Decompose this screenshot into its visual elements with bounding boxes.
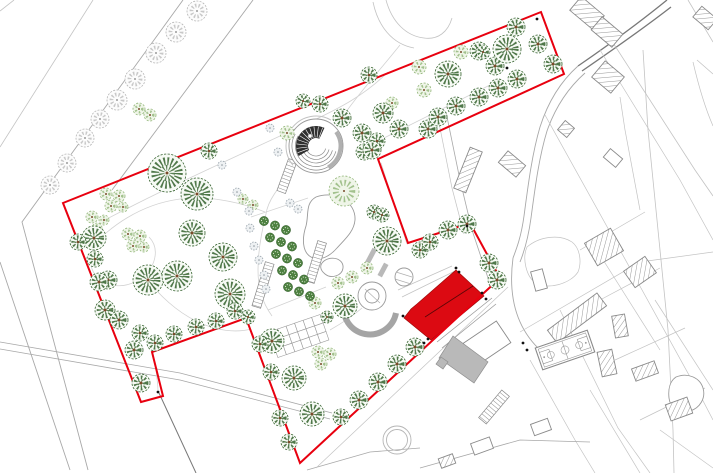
tree-trunk xyxy=(122,206,124,208)
survey-dot xyxy=(402,315,405,318)
survey-dot xyxy=(423,342,426,345)
tree-trunk xyxy=(132,245,134,247)
tree-trunk xyxy=(377,381,380,384)
tree-orchard xyxy=(287,242,296,251)
tree-trunk xyxy=(488,262,491,265)
tree-light xyxy=(312,346,324,358)
tree-light xyxy=(417,83,431,97)
building-roof xyxy=(597,349,617,377)
tree-trunk xyxy=(329,353,331,355)
tree-trunk xyxy=(326,316,328,318)
plan-line xyxy=(660,430,713,468)
tree-deciduous xyxy=(544,55,562,73)
tree-orchard xyxy=(305,291,314,300)
tree-trunk xyxy=(381,214,383,216)
tree-light xyxy=(346,271,358,283)
tree-canopy xyxy=(299,275,308,284)
tree-light xyxy=(127,240,139,252)
tree-trunk xyxy=(270,371,273,374)
tree-deciduous xyxy=(148,154,186,192)
amphi-center-dot xyxy=(308,134,312,138)
tree-trunk xyxy=(149,114,151,116)
tree-trunk xyxy=(140,382,143,385)
tree-trunk xyxy=(552,63,555,66)
tree-deciduous xyxy=(361,67,377,83)
shrub-center xyxy=(236,191,238,193)
tree-trunk xyxy=(344,305,347,308)
tree-deciduous xyxy=(321,311,333,323)
tree-trunk xyxy=(215,320,218,323)
tree-trunk xyxy=(103,219,105,221)
tree-light xyxy=(122,228,134,240)
tree-deciduous xyxy=(493,35,521,63)
survey-dot xyxy=(526,349,529,352)
tree-trunk xyxy=(371,149,374,152)
survey-dot xyxy=(522,342,525,345)
hatched-building xyxy=(438,454,456,469)
plan-line xyxy=(608,35,713,196)
tree-deciduous xyxy=(87,251,103,267)
plan-line xyxy=(386,0,452,38)
tree-canopy xyxy=(259,216,268,225)
shrub-center xyxy=(249,227,251,229)
plan-line xyxy=(373,2,414,48)
tree-trunk xyxy=(396,363,399,366)
tree-trunk xyxy=(279,417,282,420)
tree-trunk xyxy=(93,237,96,240)
tree-trunk xyxy=(175,31,177,33)
tree-orchard xyxy=(276,237,285,246)
garden-bench xyxy=(378,263,389,278)
tree-trunk xyxy=(340,416,343,419)
tree-trunk xyxy=(118,195,120,197)
tree-deciduous xyxy=(162,261,192,291)
hatched-building xyxy=(592,61,625,93)
tree-trunk xyxy=(173,333,176,336)
tree-orchard xyxy=(293,258,302,267)
plan-line xyxy=(590,390,640,473)
tree-orchard xyxy=(277,266,286,275)
tree-trunk xyxy=(127,233,129,235)
tree-trunk xyxy=(423,89,425,91)
building-roof xyxy=(531,269,548,291)
tree-deciduous xyxy=(353,124,371,142)
plan-line xyxy=(0,0,14,11)
tree-orchard xyxy=(299,275,308,284)
tree-trunk xyxy=(154,342,157,345)
shrub-gray xyxy=(233,188,241,196)
tree-deciduous xyxy=(282,366,306,390)
survey-dot xyxy=(506,67,509,70)
shrub-center xyxy=(265,288,267,290)
tree-orchard xyxy=(271,249,280,258)
tree-trunk xyxy=(147,279,150,282)
tree-deciduous xyxy=(179,220,205,246)
tree-trunk xyxy=(302,100,304,102)
building-outline xyxy=(530,418,551,435)
tree-deciduous xyxy=(208,313,224,329)
tree-trunk xyxy=(447,229,450,232)
tree-trunk xyxy=(99,118,101,120)
tree-trunk xyxy=(386,240,389,243)
tree-trunk xyxy=(478,96,481,99)
tree-light xyxy=(324,348,336,360)
tree-deciduous xyxy=(263,364,279,380)
plan-line xyxy=(0,0,93,147)
tree-deciduous xyxy=(281,434,297,450)
tree-trunk xyxy=(110,205,112,207)
tree-deciduous xyxy=(488,271,506,289)
tree-deciduous xyxy=(227,303,243,319)
steps-ladder xyxy=(252,262,274,309)
tree-trunk xyxy=(351,276,353,278)
tree-existing-gray xyxy=(166,22,186,42)
tree-trunk xyxy=(91,216,93,218)
shrub-gray xyxy=(218,161,226,169)
tree-deciduous xyxy=(439,221,457,239)
tree-trunk xyxy=(66,162,68,164)
tree-canopy xyxy=(277,266,286,275)
hatched-building xyxy=(597,349,617,377)
tree-deciduous xyxy=(181,178,213,210)
tree-trunk xyxy=(341,117,344,120)
tree-deciduous xyxy=(132,325,148,341)
tree-trunk xyxy=(98,281,101,284)
plan-line xyxy=(530,360,595,473)
tree-deciduous xyxy=(296,94,310,108)
tree-existing-gray xyxy=(58,154,76,172)
hatched-building xyxy=(693,6,713,30)
shrub-gray xyxy=(255,256,263,264)
tree-deciduous xyxy=(133,265,163,295)
tree-deciduous xyxy=(363,141,381,159)
tree-trunk xyxy=(138,108,140,110)
tree-canopy xyxy=(288,270,297,279)
tree-trunk xyxy=(271,340,274,343)
plan-line xyxy=(620,97,640,210)
building-outline xyxy=(471,437,494,455)
tree-orchard xyxy=(259,216,268,225)
tree-trunk xyxy=(104,309,107,312)
tree-light xyxy=(105,200,117,212)
shrub-center xyxy=(248,210,250,212)
tree-trunk xyxy=(247,316,249,318)
tree-trunk xyxy=(414,346,417,349)
tree-trunk xyxy=(155,52,157,54)
tree-deciduous xyxy=(312,96,328,112)
tree-trunk xyxy=(139,332,142,335)
tree-existing-gray xyxy=(146,43,166,63)
tree-light xyxy=(454,45,468,59)
building-roof xyxy=(603,149,622,168)
tree-orchard xyxy=(270,221,279,230)
bench-bar xyxy=(365,248,377,264)
tree-trunk xyxy=(320,363,322,365)
tree-trunk xyxy=(497,87,500,90)
shrub-center xyxy=(221,164,223,166)
survey-dot xyxy=(485,298,488,301)
tree-trunk xyxy=(427,128,430,131)
tree-existing-gray xyxy=(41,176,59,194)
tree-trunk xyxy=(259,343,262,346)
tree-trunk xyxy=(419,249,422,252)
tree-trunk xyxy=(376,140,379,143)
tree-existing-gray xyxy=(91,110,109,128)
survey-dot xyxy=(458,271,461,274)
tree-deciduous xyxy=(252,336,268,352)
tree-canopy xyxy=(294,287,303,296)
shrub-gray xyxy=(250,242,258,250)
tree-trunk xyxy=(368,74,371,77)
tree-deciduous xyxy=(350,391,368,409)
tree-trunk xyxy=(176,275,179,278)
shrub-gray xyxy=(260,271,268,279)
shrub-center xyxy=(253,245,255,247)
building-roof xyxy=(498,151,525,177)
plan-line xyxy=(446,112,488,278)
garden-circle xyxy=(395,268,413,286)
tree-trunk xyxy=(118,319,121,322)
shrub-center xyxy=(269,127,271,129)
tree-trunk xyxy=(105,193,107,195)
tree-trunk xyxy=(516,78,519,81)
tree-trunk xyxy=(116,99,118,101)
survey-dot xyxy=(466,225,469,228)
plan-line xyxy=(513,66,578,258)
plan-line xyxy=(520,73,585,262)
tree-deciduous xyxy=(373,227,401,255)
tree-trunk xyxy=(134,78,136,80)
tree-trunk xyxy=(398,128,401,131)
building-roof xyxy=(624,256,657,287)
tree-light xyxy=(100,188,112,200)
tree-deciduous xyxy=(188,319,204,335)
building-roof xyxy=(612,314,629,338)
steps-ladder xyxy=(277,158,297,193)
tree-light xyxy=(144,109,156,121)
building-roof xyxy=(438,454,456,469)
tree-orchard xyxy=(265,233,274,242)
tree-deciduous xyxy=(90,273,108,291)
tree-deciduous xyxy=(388,355,406,373)
building-roof xyxy=(471,437,494,455)
tree-deciduous xyxy=(476,45,490,59)
shrub-center xyxy=(258,259,260,261)
tree-deciduous xyxy=(333,409,349,425)
tree-trunk xyxy=(358,399,361,402)
tree-deciduous xyxy=(272,410,288,426)
tree-deciduous xyxy=(529,35,547,53)
building-roof xyxy=(632,361,659,381)
tree-trunk xyxy=(314,302,316,304)
tree-trunk xyxy=(366,267,368,269)
tree-trunk xyxy=(361,132,364,135)
tree-trunk xyxy=(143,246,145,248)
tree-trunk xyxy=(447,73,450,76)
shrub-center xyxy=(277,151,279,153)
tree-canopy xyxy=(305,291,314,300)
tree-deciduous xyxy=(480,254,498,272)
tree-trunk xyxy=(234,310,237,313)
tree-canopy xyxy=(265,233,274,242)
shrub-gray xyxy=(245,207,253,215)
tree-light xyxy=(361,262,373,274)
plan-line xyxy=(0,262,70,470)
tree-orchard xyxy=(281,225,290,234)
tree-trunk xyxy=(373,211,375,213)
tree-trunk xyxy=(537,43,540,46)
hatched-building xyxy=(624,256,657,287)
tree-deciduous xyxy=(110,311,128,329)
tree-orchard xyxy=(282,254,291,263)
shrub-center xyxy=(263,274,265,276)
garden-bench xyxy=(365,248,377,264)
tree-deciduous xyxy=(406,338,424,356)
tree-light xyxy=(118,202,128,212)
site-buildings xyxy=(404,270,488,383)
tree-trunk xyxy=(337,282,339,284)
hatched-building xyxy=(632,361,659,381)
shrub-center xyxy=(297,208,299,210)
tree-deciduous xyxy=(215,279,245,309)
circle-feature xyxy=(387,430,408,451)
shrub-gray xyxy=(266,124,274,132)
building-roof xyxy=(530,418,551,435)
steps-ladder xyxy=(479,390,510,424)
shrub-gray xyxy=(274,148,282,156)
tree-deciduous xyxy=(435,61,461,87)
tree-canopy xyxy=(281,225,290,234)
tree-deciduous xyxy=(373,103,393,123)
hatched-building xyxy=(558,121,575,138)
tree-trunk xyxy=(195,326,198,329)
shrub-gray xyxy=(286,199,294,207)
tree-deciduous xyxy=(429,108,447,126)
tree-trunk xyxy=(482,51,484,53)
building-roof xyxy=(558,121,575,138)
survey-dot xyxy=(427,338,430,341)
tree-orchard xyxy=(294,287,303,296)
tree-trunk xyxy=(77,241,80,244)
tree-deciduous xyxy=(369,373,387,391)
tree-deciduous xyxy=(333,294,357,318)
tree-canopy xyxy=(283,282,292,291)
tree-light xyxy=(332,277,344,289)
tree-deciduous xyxy=(132,374,150,392)
steps-outline xyxy=(252,262,274,309)
tree-deciduous xyxy=(300,402,324,426)
tree-deciduous xyxy=(390,120,408,138)
tree-existing-gray xyxy=(107,90,127,110)
tree-trunk xyxy=(418,66,420,68)
tree-trunk xyxy=(317,351,319,353)
tree-trunk xyxy=(506,48,509,51)
tree-deciduous xyxy=(82,226,106,250)
hatched-building xyxy=(498,151,525,177)
tree-trunk xyxy=(196,10,198,12)
bench-bar xyxy=(378,263,389,278)
tree-light xyxy=(280,126,294,140)
shrub-gray xyxy=(246,224,254,232)
tree-light xyxy=(99,215,109,225)
tree-deciduous xyxy=(125,341,143,359)
shrub-gray xyxy=(262,285,270,293)
tree-trunk xyxy=(191,232,194,235)
tree-deciduous xyxy=(241,310,255,324)
tree-orchard xyxy=(288,270,297,279)
building-roof xyxy=(592,61,625,93)
survey-dot xyxy=(157,391,160,394)
tree-trunk xyxy=(319,103,322,106)
tree-trunk xyxy=(94,258,97,261)
tree-trunk xyxy=(437,116,440,119)
survey-dot xyxy=(536,18,539,21)
tree-existing-gray xyxy=(125,69,145,89)
tree-orchard xyxy=(283,282,292,291)
tree-trunk xyxy=(208,150,211,153)
tree-trunk xyxy=(293,377,296,380)
tree-trunk xyxy=(311,413,314,416)
tree-trunk xyxy=(391,102,393,104)
tree-trunk xyxy=(288,441,291,444)
tree-trunk xyxy=(382,112,385,115)
tree-trunk xyxy=(343,190,345,192)
plan-line xyxy=(697,60,713,74)
tree-deciduous xyxy=(447,97,465,115)
tree-trunk xyxy=(286,132,288,134)
tree-light xyxy=(133,103,145,115)
tree-trunk xyxy=(166,172,169,175)
hatched-building xyxy=(585,228,624,266)
building-outline xyxy=(603,149,622,168)
tree-trunk xyxy=(252,204,254,206)
tree-deciduous xyxy=(147,335,163,351)
tree-canopy xyxy=(271,249,280,258)
tree-light xyxy=(412,60,426,74)
tree-layer xyxy=(41,1,562,450)
tree-deciduous xyxy=(458,215,476,233)
tree-deciduous xyxy=(470,88,488,106)
tree-canopy xyxy=(276,237,285,246)
tree-deciduous xyxy=(422,234,438,250)
tree-trunk xyxy=(133,349,136,352)
tree-deciduous xyxy=(489,79,507,97)
landform-blob xyxy=(321,258,343,276)
tree-existing-gray xyxy=(187,1,207,21)
survey-dot xyxy=(481,292,484,295)
building-roof xyxy=(693,6,713,30)
tree-existing-gray xyxy=(76,129,94,147)
tree-deciduous xyxy=(209,243,237,271)
shrub-gray xyxy=(294,205,302,213)
tree-canopy xyxy=(282,254,291,263)
tree-trunk xyxy=(460,51,462,53)
tree-trunk xyxy=(455,105,458,108)
building-outline xyxy=(531,269,548,291)
site-plan-drawing xyxy=(0,0,713,473)
tree-trunk xyxy=(429,241,432,244)
tree-deciduous xyxy=(201,143,217,159)
tree-trunk xyxy=(496,279,499,282)
building-roof xyxy=(585,228,624,266)
tree-light xyxy=(139,242,149,252)
tree-trunk xyxy=(515,26,518,29)
tree-trunk xyxy=(229,293,232,296)
plan-line xyxy=(307,448,420,470)
tree-trunk xyxy=(196,193,199,196)
tree-light xyxy=(329,176,359,206)
tree-light xyxy=(86,211,98,223)
